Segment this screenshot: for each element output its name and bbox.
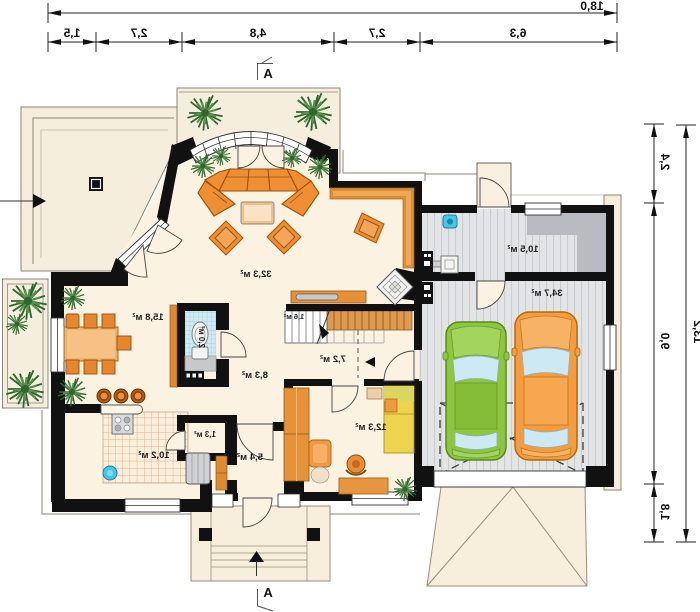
svg-text:9,0: 9,0	[658, 332, 672, 349]
svg-text:1,5: 1,5	[63, 26, 80, 40]
svg-text:13,2: 13,2	[691, 320, 700, 344]
svg-text:34,7 м²: 34,7 м²	[531, 288, 562, 299]
svg-text:1,6 м²: 1,6 м²	[283, 312, 304, 321]
svg-text:2,7: 2,7	[130, 26, 147, 40]
svg-text:2,0 м²: 2,0 м²	[197, 326, 206, 348]
svg-text:A: A	[263, 66, 273, 81]
svg-text:5,4 м²: 5,4 м²	[237, 452, 263, 463]
svg-text:2,4: 2,4	[658, 153, 672, 170]
svg-text:10,5 м²: 10,5 м²	[507, 244, 538, 255]
svg-text:32,3 м²: 32,3 м²	[240, 269, 271, 280]
svg-text:15,8 м²: 15,8 м²	[132, 312, 163, 323]
svg-text:1,8: 1,8	[658, 503, 672, 520]
svg-text:12,3 м²: 12,3 м²	[355, 422, 386, 433]
svg-text:18,0: 18,0	[580, 0, 604, 13]
svg-text:4,8: 4,8	[249, 26, 266, 40]
svg-text:2,7: 2,7	[368, 26, 385, 40]
svg-text:8,3 м²: 8,3 м²	[242, 370, 268, 381]
svg-text:7,2 м²: 7,2 м²	[320, 354, 346, 365]
svg-text:10,2 м²: 10,2 м²	[138, 450, 169, 461]
svg-text:A: A	[263, 585, 273, 600]
svg-text:1,3 м²: 1,3 м²	[194, 430, 216, 439]
svg-text:6,3: 6,3	[509, 26, 526, 40]
